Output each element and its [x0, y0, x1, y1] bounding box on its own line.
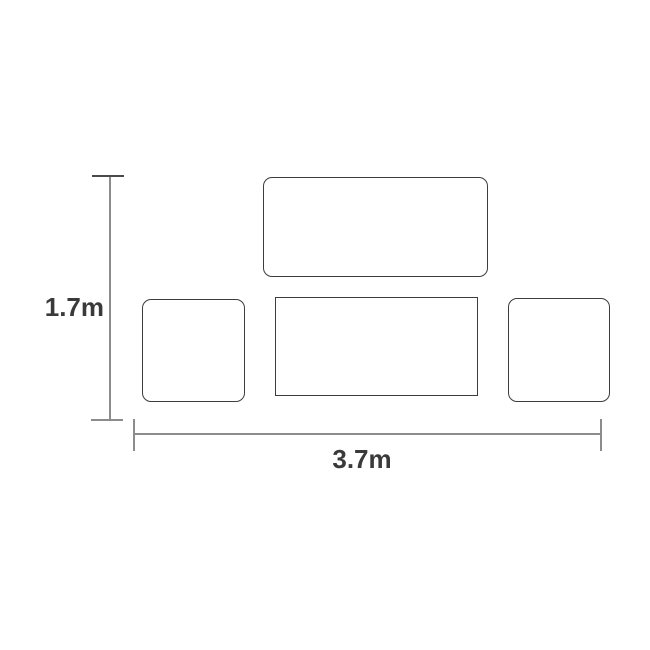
right-square — [508, 298, 610, 402]
furniture-dimension-diagram: 1.7m 3.7m — [0, 0, 650, 650]
top-rectangle — [263, 177, 488, 277]
horizontal-dimension-left-tick — [133, 419, 135, 451]
width-dimension-label: 3.7m — [322, 446, 402, 472]
horizontal-dimension-line — [134, 433, 601, 435]
vertical-dimension-bottom-tick — [91, 419, 123, 421]
left-square — [142, 299, 245, 402]
vertical-dimension-top-tick — [92, 175, 124, 177]
height-dimension-label: 1.7m — [40, 294, 104, 320]
center-rectangle — [275, 297, 478, 396]
horizontal-dimension-right-tick — [600, 419, 602, 451]
vertical-dimension-line — [109, 176, 111, 420]
